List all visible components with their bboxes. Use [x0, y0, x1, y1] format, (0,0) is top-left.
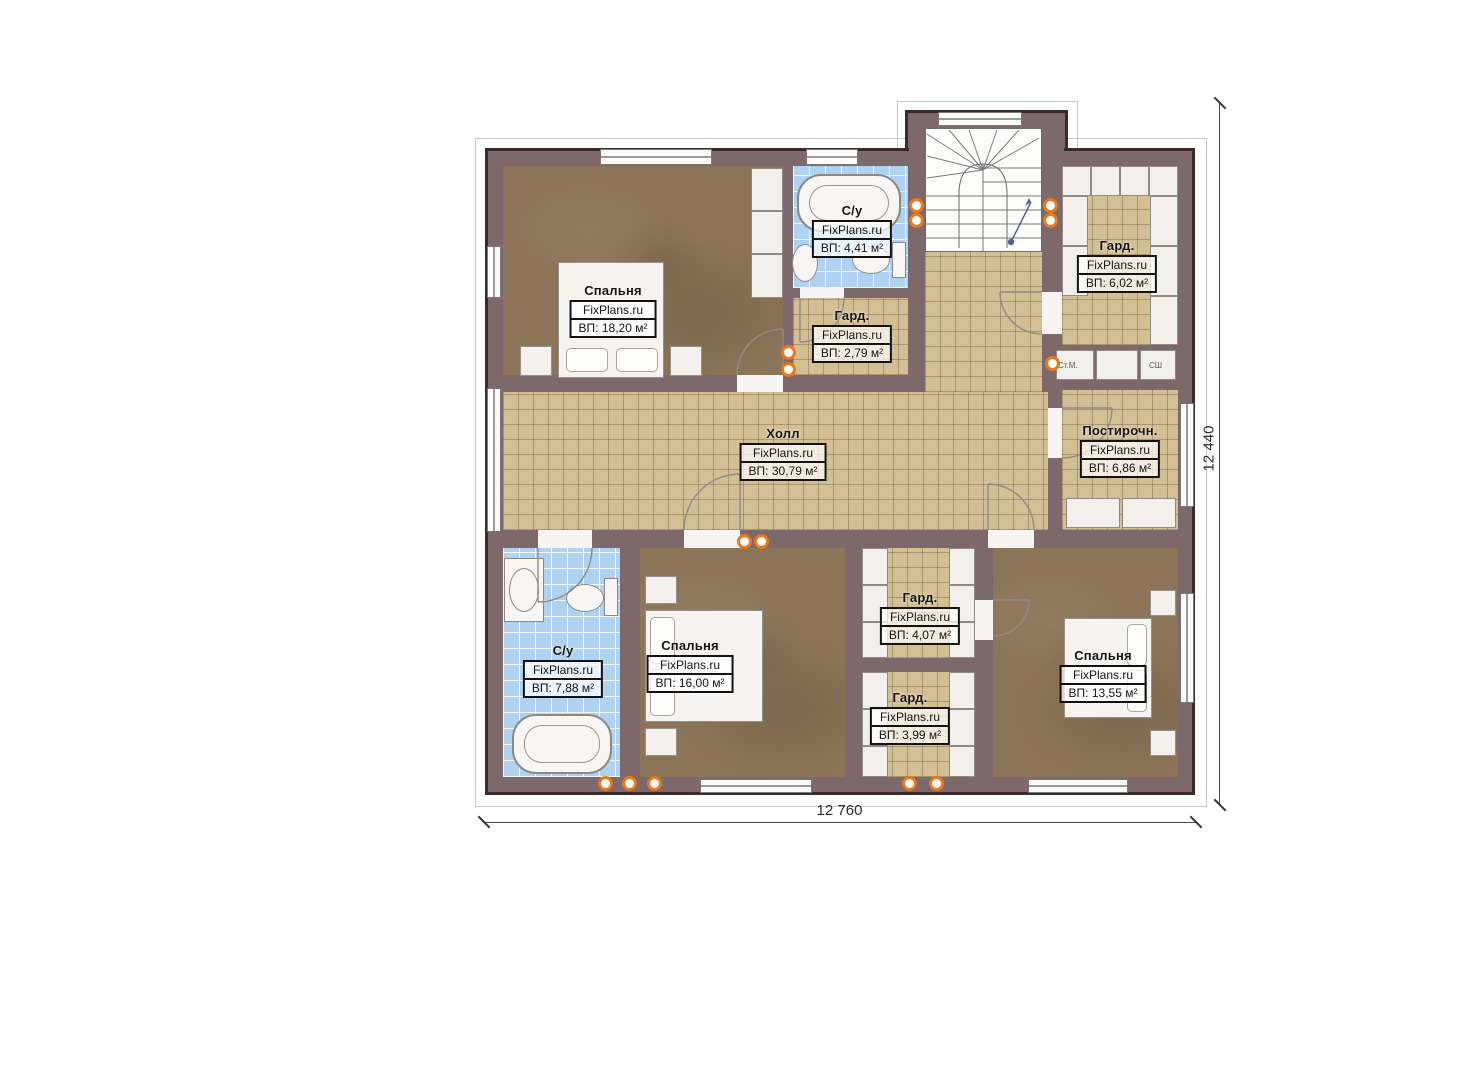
room-area: ВП: 30,79 м²	[742, 463, 825, 479]
brand-watermark: FixPlans.ru	[814, 327, 890, 345]
vent-marker	[737, 534, 752, 549]
room-label-wardrobe-right: Гард. FixPlans.ru ВП: 6,02 м²	[1077, 238, 1157, 293]
vent-marker	[1043, 198, 1058, 213]
vent-marker	[929, 776, 944, 791]
room-label-wardrobe-middle-lower: Гард. FixPlans.ru ВП: 3,99 м²	[870, 690, 950, 745]
room-area: ВП: 2,79 м²	[814, 345, 890, 361]
room-label-bathroom-top: С/у FixPlans.ru ВП: 4,41 м²	[812, 203, 892, 258]
room-label-wardrobe-top: Гард. FixPlans.ru ВП: 2,79 м²	[812, 308, 892, 363]
room-label-bedroom-bottom-right: Спальня FixPlans.ru ВП: 13,55 м²	[1060, 648, 1147, 703]
brand-watermark: FixPlans.ru	[1062, 667, 1145, 685]
vent-marker	[1043, 213, 1058, 228]
room-area: ВП: 4,41 м²	[814, 240, 890, 256]
room-area: ВП: 16,00 м²	[649, 675, 732, 691]
brand-watermark: FixPlans.ru	[872, 709, 948, 727]
vent-marker	[1045, 356, 1060, 371]
brand-watermark: FixPlans.ru	[572, 302, 655, 320]
vent-marker	[598, 776, 613, 791]
room-name: Постирочн.	[1080, 423, 1160, 438]
brand-watermark: FixPlans.ru	[525, 662, 601, 680]
vent-marker	[622, 776, 637, 791]
brand-watermark: FixPlans.ru	[1079, 257, 1155, 275]
room-label-wardrobe-middle-upper: Гард. FixPlans.ru ВП: 4,07 м²	[880, 590, 960, 645]
brand-watermark: FixPlans.ru	[814, 222, 890, 240]
room-name: С/у	[523, 643, 603, 658]
room-area: ВП: 3,99 м²	[872, 727, 948, 743]
room-name: С/у	[812, 203, 892, 218]
room-area: ВП: 6,86 м²	[1082, 460, 1158, 476]
brand-watermark: FixPlans.ru	[742, 445, 825, 463]
vent-marker	[781, 345, 796, 360]
room-label-hall: Холл FixPlans.ru ВП: 30,79 м²	[740, 426, 827, 481]
vent-marker	[909, 213, 924, 228]
room-name: Гард.	[1077, 238, 1157, 253]
floor-plan-canvas: Ст.М. СШ	[0, 0, 1473, 1080]
brand-watermark: FixPlans.ru	[882, 609, 958, 627]
room-area: ВП: 6,02 м²	[1079, 275, 1155, 291]
room-area: ВП: 7,88 м²	[525, 680, 601, 696]
vent-marker	[754, 534, 769, 549]
room-name: Гард.	[812, 308, 892, 323]
brand-watermark: FixPlans.ru	[1082, 442, 1158, 460]
room-name: Холл	[740, 426, 827, 441]
vent-marker	[781, 362, 796, 377]
vent-marker	[909, 198, 924, 213]
room-label-bedroom-bottom-middle: Спальня FixPlans.ru ВП: 16,00 м²	[647, 638, 734, 693]
room-name: Спальня	[1060, 648, 1147, 663]
room-label-laundry: Постирочн. FixPlans.ru ВП: 6,86 м²	[1080, 423, 1160, 478]
room-name: Спальня	[647, 638, 734, 653]
room-name: Гард.	[870, 690, 950, 705]
room-area: ВП: 18,20 м²	[572, 320, 655, 336]
room-name: Спальня	[570, 283, 657, 298]
room-label-bathroom-bottom: С/у FixPlans.ru ВП: 7,88 м²	[523, 643, 603, 698]
room-label-bedroom-top-left: Спальня FixPlans.ru ВП: 18,20 м²	[570, 283, 657, 338]
vent-marker	[647, 776, 662, 791]
brand-watermark: FixPlans.ru	[649, 657, 732, 675]
room-area: ВП: 13,55 м²	[1062, 685, 1145, 701]
room-area: ВП: 4,07 м²	[882, 627, 958, 643]
room-name: Гард.	[880, 590, 960, 605]
vent-marker	[902, 776, 917, 791]
